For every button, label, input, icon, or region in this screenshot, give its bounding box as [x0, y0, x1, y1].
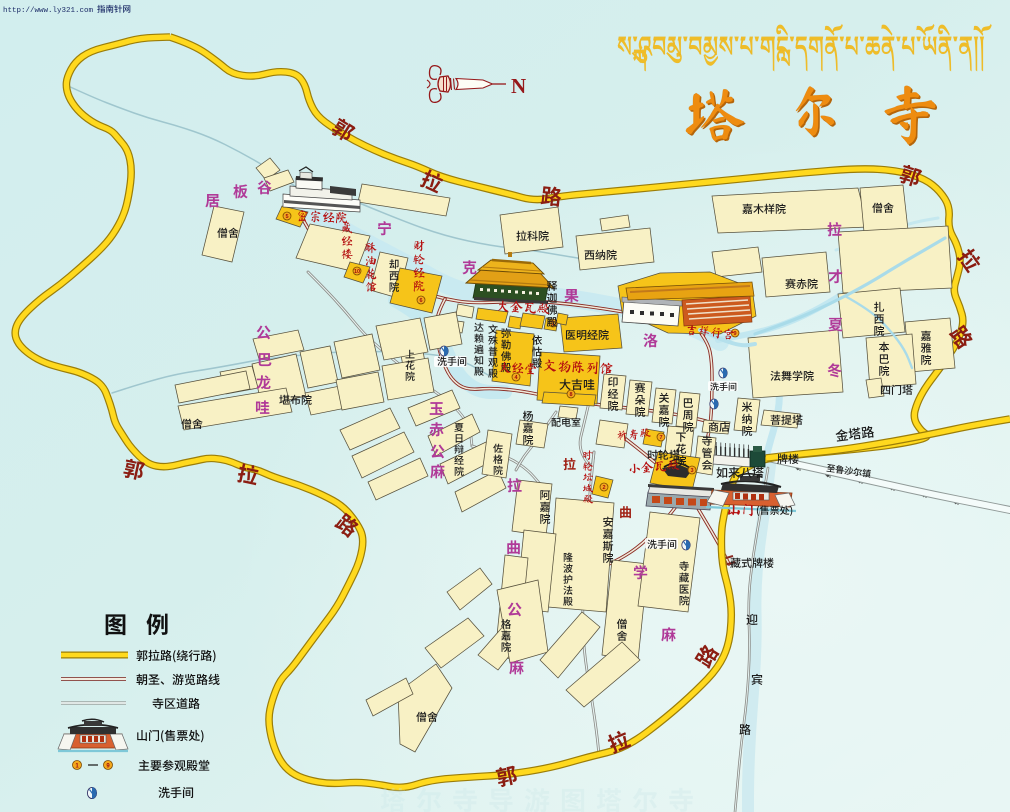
svg-text:7: 7	[659, 435, 662, 441]
svg-text:5: 5	[285, 214, 288, 220]
svg-text:8: 8	[569, 392, 572, 398]
svg-text:3: 3	[690, 468, 693, 474]
svg-text:9: 9	[733, 331, 736, 337]
svg-text:6: 6	[419, 298, 422, 304]
svg-text:10: 10	[354, 269, 360, 275]
svg-text:http://www.ly321.com: http://www.ly321.com	[3, 7, 94, 15]
svg-text:N: N	[511, 74, 526, 98]
svg-text:2: 2	[602, 485, 605, 491]
